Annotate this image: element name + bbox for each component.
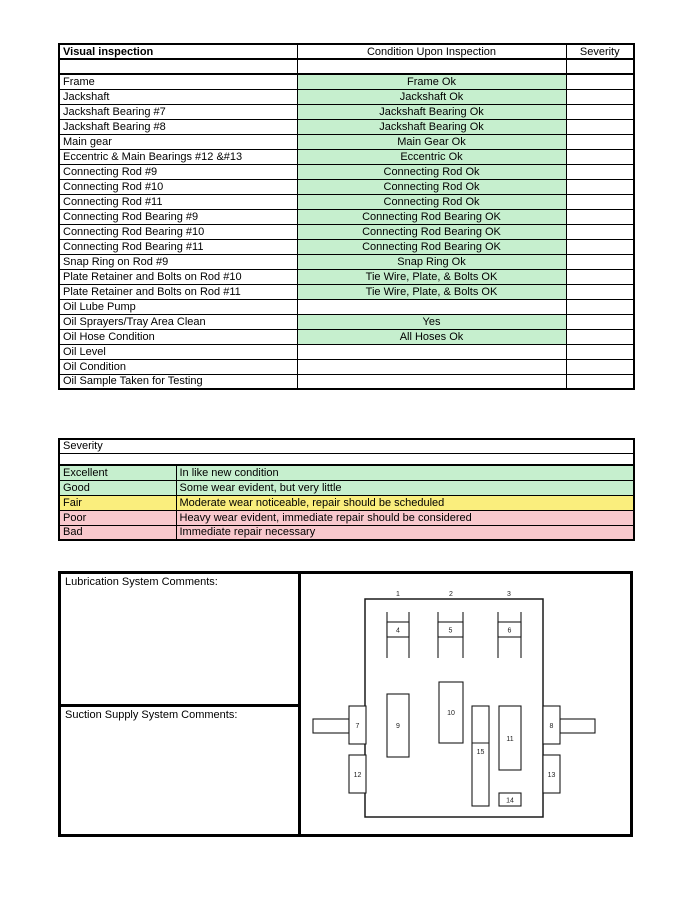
lubrication-comments-label: Lubrication System Comments:	[65, 576, 218, 588]
condition-cell	[297, 59, 566, 74]
right-shaft	[560, 719, 595, 733]
part-label-13: 13	[548, 772, 556, 779]
inspection-item-cell: Connecting Rod Bearing #10	[59, 224, 297, 239]
col-header-severity: Severity	[566, 44, 634, 59]
inspection-row: Main gearMain Gear Ok	[59, 134, 634, 149]
severity-cell	[566, 254, 634, 269]
severity-legend-table: Severity ExcellentIn like new conditionG…	[58, 438, 635, 541]
condition-cell: Jackshaft Ok	[297, 89, 566, 104]
condition-cell: Connecting Rod Bearing OK	[297, 239, 566, 254]
inspection-row: Oil Sprayers/Tray Area CleanYes	[59, 314, 634, 329]
inspection-row	[59, 59, 634, 74]
condition-cell: Main Gear Ok	[297, 134, 566, 149]
inspection-row: Connecting Rod #9Connecting Rod Ok	[59, 164, 634, 179]
severity-cell	[566, 89, 634, 104]
inspection-row: Oil Level	[59, 344, 634, 359]
severity-cell	[566, 269, 634, 284]
severity-level-label-cell: Fair	[59, 495, 176, 510]
suction-comments-cell: Suction Supply System Comments:	[61, 707, 298, 834]
part-label-9: 9	[396, 723, 400, 730]
severity-table-title: Severity	[59, 439, 634, 453]
condition-cell: Tie Wire, Plate, & Bolts OK	[297, 269, 566, 284]
inspection-row: Connecting Rod #11Connecting Rod Ok	[59, 194, 634, 209]
severity-level-row: PoorHeavy wear evident, immediate repair…	[59, 510, 634, 525]
severity-level-label-cell: Poor	[59, 510, 176, 525]
inspection-item-cell: Jackshaft Bearing #8	[59, 119, 297, 134]
inspection-item-cell: Connecting Rod Bearing #9	[59, 209, 297, 224]
inspection-row: Connecting Rod Bearing #11Connecting Rod…	[59, 239, 634, 254]
severity-cell	[566, 149, 634, 164]
severity-cell	[566, 314, 634, 329]
condition-cell	[297, 299, 566, 314]
severity-cell	[566, 119, 634, 134]
severity-level-description-cell: In like new condition	[176, 465, 634, 480]
inspection-row: Plate Retainer and Bolts on Rod #10Tie W…	[59, 269, 634, 284]
inspection-row: Jackshaft Bearing #8Jackshaft Bearing Ok	[59, 119, 634, 134]
condition-cell: Frame Ok	[297, 74, 566, 89]
part-label-7: 7	[356, 723, 360, 730]
inspection-header-row: Visual inspection Condition Upon Inspect…	[59, 44, 634, 59]
inspection-row: Connecting Rod Bearing #9Connecting Rod …	[59, 209, 634, 224]
inspection-row: Oil Sample Taken for Testing	[59, 374, 634, 389]
severity-level-label-cell: Good	[59, 480, 176, 495]
severity-empty-row	[59, 453, 634, 465]
severity-level-description-cell: Immediate repair necessary	[176, 525, 634, 540]
severity-cell	[566, 239, 634, 254]
severity-level-label-cell: Bad	[59, 525, 176, 540]
part-label-8: 8	[550, 723, 554, 730]
inspection-row: Oil Condition	[59, 359, 634, 374]
inspection-item-cell: Oil Lube Pump	[59, 299, 297, 314]
inspection-row: Jackshaft Bearing #7Jackshaft Bearing Ok	[59, 104, 634, 119]
inspection-item-cell: Jackshaft Bearing #7	[59, 104, 297, 119]
severity-level-description-cell: Moderate wear noticeable, repair should …	[176, 495, 634, 510]
condition-cell	[297, 374, 566, 389]
visual-inspection-table: Visual inspection Condition Upon Inspect…	[58, 43, 635, 390]
machine-diagram-pane: 1 2 3 4 5 6 7 12 8 13	[301, 574, 630, 834]
severity-cell	[566, 74, 634, 89]
severity-level-row: BadImmediate repair necessary	[59, 525, 634, 540]
condition-cell: Eccentric Ok	[297, 149, 566, 164]
severity-cell	[566, 329, 634, 344]
condition-cell: Snap Ring Ok	[297, 254, 566, 269]
inspection-item-cell: Oil Sprayers/Tray Area Clean	[59, 314, 297, 329]
inspection-item-cell: Snap Ring on Rod #9	[59, 254, 297, 269]
col-header-visual-inspection: Visual inspection	[59, 44, 297, 59]
condition-cell	[297, 359, 566, 374]
part-label-11: 11	[506, 736, 513, 743]
inspection-row: JackshaftJackshaft Ok	[59, 89, 634, 104]
severity-level-label-cell: Excellent	[59, 465, 176, 480]
severity-cell	[566, 104, 634, 119]
inspection-item-cell: Oil Sample Taken for Testing	[59, 374, 297, 389]
severity-level-row: ExcellentIn like new condition	[59, 465, 634, 480]
inspection-row: Plate Retainer and Bolts on Rod #11Tie W…	[59, 284, 634, 299]
inspection-item-cell: Connecting Rod Bearing #11	[59, 239, 297, 254]
condition-cell: Tie Wire, Plate, & Bolts OK	[297, 284, 566, 299]
inspection-row: Snap Ring on Rod #9Snap Ring Ok	[59, 254, 634, 269]
machine-diagram: 1 2 3 4 5 6 7 12 8 13	[301, 574, 630, 834]
condition-cell: Jackshaft Bearing Ok	[297, 104, 566, 119]
severity-cell	[566, 359, 634, 374]
inspection-item-cell: Oil Level	[59, 344, 297, 359]
part-label-4: 4	[396, 628, 400, 635]
inspection-row: Connecting Rod Bearing #10Connecting Rod…	[59, 224, 634, 239]
severity-cell	[566, 209, 634, 224]
part-label-15: 15	[477, 749, 485, 756]
severity-cell	[566, 299, 634, 314]
inspection-item-cell: Oil Hose Condition	[59, 329, 297, 344]
severity-cell	[566, 59, 634, 74]
part-label-12: 12	[354, 772, 362, 779]
condition-cell: Connecting Rod Ok	[297, 164, 566, 179]
lubrication-comments-cell: Lubrication System Comments:	[61, 574, 298, 707]
condition-cell: Jackshaft Bearing Ok	[297, 119, 566, 134]
comments-left-pane: Lubrication System Comments: Suction Sup…	[61, 574, 301, 834]
severity-cell	[566, 179, 634, 194]
inspection-item-cell: Plate Retainer and Bolts on Rod #11	[59, 284, 297, 299]
suction-comments-label: Suction Supply System Comments:	[65, 709, 237, 721]
part-box-15	[472, 706, 489, 806]
severity-level-row: FairModerate wear noticeable, repair sho…	[59, 495, 634, 510]
part-label-10: 10	[447, 710, 455, 717]
col-header-condition: Condition Upon Inspection	[297, 44, 566, 59]
inspection-item-cell: Connecting Rod #9	[59, 164, 297, 179]
condition-cell: Connecting Rod Ok	[297, 179, 566, 194]
inspection-row: Oil Hose ConditionAll Hoses Ok	[59, 329, 634, 344]
inspection-row: Eccentric & Main Bearings #12 &#13Eccent…	[59, 149, 634, 164]
severity-level-description-cell: Some wear evident, but very little	[176, 480, 634, 495]
part-label-6: 6	[508, 628, 512, 635]
severity-title-row: Severity	[59, 439, 634, 453]
condition-cell	[297, 344, 566, 359]
severity-cell	[566, 194, 634, 209]
severity-level-description-cell: Heavy wear evident, immediate repair sho…	[176, 510, 634, 525]
inspection-item-cell: Jackshaft	[59, 89, 297, 104]
comments-section: Lubrication System Comments: Suction Sup…	[58, 571, 633, 837]
inspection-item-cell: Oil Condition	[59, 359, 297, 374]
condition-cell: Yes	[297, 314, 566, 329]
inspection-item-cell: Frame	[59, 74, 297, 89]
part-label-3: 3	[507, 591, 511, 598]
severity-cell	[566, 344, 634, 359]
page: { "inspection_table": { "headers": { "it…	[0, 0, 695, 900]
inspection-item-cell: Eccentric & Main Bearings #12 &#13	[59, 149, 297, 164]
condition-cell: All Hoses Ok	[297, 329, 566, 344]
part-label-5: 5	[449, 628, 453, 635]
inspection-row: Oil Lube Pump	[59, 299, 634, 314]
part-label-2: 2	[449, 591, 453, 598]
part-label-1: 1	[396, 591, 400, 598]
left-shaft	[313, 719, 349, 733]
inspection-item-cell: Plate Retainer and Bolts on Rod #10	[59, 269, 297, 284]
inspection-item-cell: Connecting Rod #10	[59, 179, 297, 194]
condition-cell: Connecting Rod Bearing OK	[297, 209, 566, 224]
severity-cell	[566, 134, 634, 149]
inspection-item-cell	[59, 59, 297, 74]
inspection-item-cell: Connecting Rod #11	[59, 194, 297, 209]
severity-cell	[566, 224, 634, 239]
condition-cell: Connecting Rod Bearing OK	[297, 224, 566, 239]
inspection-row: Connecting Rod #10Connecting Rod Ok	[59, 179, 634, 194]
inspection-item-cell: Main gear	[59, 134, 297, 149]
severity-cell	[566, 164, 634, 179]
condition-cell: Connecting Rod Ok	[297, 194, 566, 209]
severity-cell	[566, 374, 634, 389]
severity-level-row: GoodSome wear evident, but very little	[59, 480, 634, 495]
severity-cell	[566, 284, 634, 299]
part-label-14: 14	[506, 798, 514, 805]
inspection-row: FrameFrame Ok	[59, 74, 634, 89]
